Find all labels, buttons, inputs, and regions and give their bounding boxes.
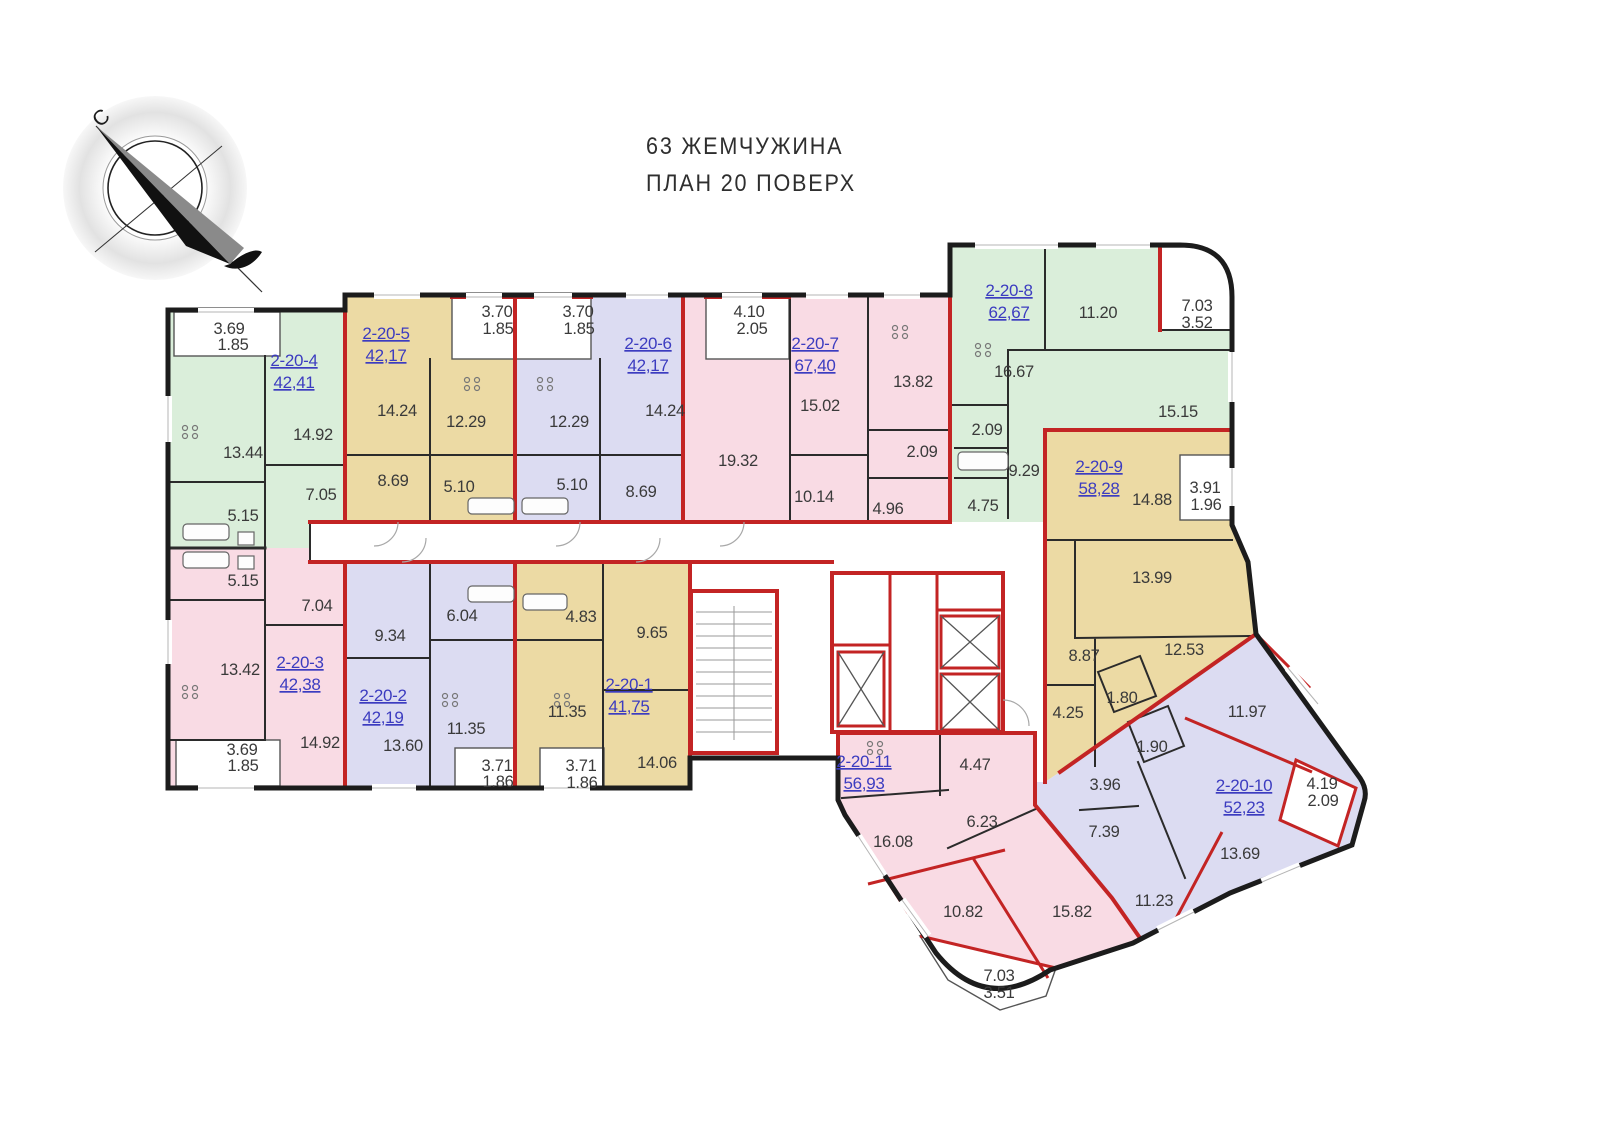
compass-rose-icon: С — [63, 96, 262, 292]
apartment-id-label: 2-20-5 — [362, 324, 409, 343]
room-area-label: 2.09 — [1308, 792, 1339, 810]
room-area-label: 4.47 — [960, 756, 991, 774]
room-area-label: 2.05 — [737, 320, 768, 338]
room-area-label: 16.67 — [994, 363, 1034, 381]
apartment-area-label: 42,41 — [273, 373, 314, 392]
room-area-label: 1.86 — [567, 774, 598, 792]
room-area-label: 15.15 — [1158, 403, 1198, 421]
room-area-label: 13.42 — [220, 661, 260, 679]
apartment-area-label: 42,17 — [627, 356, 668, 375]
room-area-label: 13.99 — [1132, 569, 1172, 587]
room-area-label: 6.04 — [447, 607, 478, 625]
room-area-label: 5.10 — [444, 478, 475, 496]
apartment-area-label: 42,19 — [362, 708, 403, 727]
apartment-area-label: 62,67 — [988, 303, 1029, 322]
room-area-label: 11.35 — [548, 703, 587, 721]
room-area-label: 9.29 — [1009, 462, 1040, 480]
room-area-label: 9.65 — [637, 624, 668, 642]
room-area-label: 5.15 — [228, 572, 259, 590]
room-area-label: 14.88 — [1132, 491, 1172, 509]
room-area-label: 3.70 — [563, 303, 594, 321]
room-area-label: 3.51 — [984, 984, 1015, 1002]
room-area-label: 15.82 — [1052, 903, 1092, 921]
room-area-label: 4.10 — [734, 303, 765, 321]
apartment-area-label: 41,75 — [608, 697, 649, 716]
room-area-label: 10.14 — [794, 488, 834, 506]
room-area-label: 13.69 — [1220, 845, 1260, 863]
apartment-id-label: 2-20-6 — [624, 334, 671, 353]
room-area-label: 14.06 — [637, 754, 677, 772]
apartment-area-label: 42,17 — [365, 346, 406, 365]
apartment-id-label: 2-20-10 — [1216, 776, 1273, 795]
room-area-label: 1.85 — [228, 757, 259, 775]
apartment-id-label: 2-20-2 — [359, 686, 406, 705]
floor-plan-drawing: С — [0, 0, 1600, 1131]
room-area-label: 1.85 — [483, 320, 514, 338]
room-area-label: 3.96 — [1090, 776, 1121, 794]
room-area-label: 3.52 — [1182, 314, 1213, 332]
room-area-label: 15.02 — [800, 397, 840, 415]
room-area-label: 5.10 — [557, 476, 588, 494]
room-area-label: 9.34 — [375, 627, 406, 645]
room-area-label: 4.75 — [968, 497, 999, 515]
room-area-label: 1.85 — [218, 336, 249, 354]
room-area-label: 2.09 — [972, 421, 1003, 439]
room-area-label: 10.82 — [943, 903, 983, 921]
room-area-label: 4.25 — [1053, 704, 1084, 722]
room-area-label: 16.08 — [873, 833, 913, 851]
room-area-label: 3.70 — [482, 303, 513, 321]
room-area-label: 2.09 — [907, 443, 938, 461]
room-area-label: 1.80 — [1107, 689, 1138, 707]
room-area-label: 11.35 — [447, 720, 486, 738]
room-area-label: 11.20 — [1079, 304, 1118, 322]
room-area-label: 3.91 — [1190, 479, 1221, 497]
room-area-label: 8.69 — [626, 483, 657, 501]
room-area-label: 4.96 — [873, 500, 904, 518]
room-area-label: 19.32 — [718, 452, 758, 470]
apartment-id-label: 2-20-3 — [276, 653, 323, 672]
apartment-area-label: 52,23 — [1223, 798, 1264, 817]
room-area-label: 7.03 — [984, 967, 1015, 985]
room-area-label: 1.86 — [483, 773, 514, 791]
room-area-label: 5.15 — [228, 507, 259, 525]
room-area-label: 12.29 — [549, 413, 589, 431]
apartment-area-label: 58,28 — [1078, 479, 1119, 498]
floor-plan-sheet: 63 ЖЕМЧУЖИНА ПЛАН 20 ПОВЕРХ С — [0, 0, 1600, 1131]
room-area-label: 13.44 — [223, 444, 263, 462]
room-area-label: 1.85 — [564, 320, 595, 338]
room-area-label: 8.87 — [1069, 647, 1100, 665]
room-area-label: 12.53 — [1164, 641, 1204, 659]
corridor — [310, 522, 1045, 562]
apartment-area-label: 42,38 — [279, 675, 320, 694]
elevator-lobby — [1003, 562, 1045, 733]
room-area-label: 1.96 — [1191, 496, 1222, 514]
room-area-label: 1.90 — [1137, 738, 1168, 756]
apartment-id-label: 2-20-1 — [605, 675, 652, 694]
room-area-label: 7.03 — [1182, 297, 1213, 315]
room-area-label: 4.19 — [1307, 775, 1338, 793]
apartment-id-label: 2-20-8 — [985, 281, 1032, 300]
apartment-id-label: 2-20-9 — [1075, 457, 1122, 476]
room-area-label: 14.24 — [645, 402, 685, 420]
room-area-label: 7.04 — [302, 597, 333, 615]
room-area-label: 4.83 — [566, 608, 597, 626]
room-area-label: 8.69 — [378, 472, 409, 490]
room-area-label: 13.60 — [383, 737, 423, 755]
apartment-id-label: 2-20-11 — [836, 752, 891, 771]
room-area-label: 12.29 — [446, 413, 486, 431]
apartment-id-label: 2-20-4 — [270, 351, 317, 370]
room-area-label: 14.92 — [300, 734, 340, 752]
room-area-label: 7.39 — [1089, 823, 1120, 841]
room-area-label: 7.05 — [306, 486, 337, 504]
room-area-label: 11.23 — [1135, 892, 1174, 910]
room-area-label: 3.71 — [566, 757, 597, 775]
stairwell — [688, 578, 782, 755]
apartment-area-label: 56,93 — [843, 774, 884, 793]
room-area-label: 14.92 — [293, 426, 333, 444]
room-area-label: 11.97 — [1228, 703, 1267, 721]
room-area-label: 13.82 — [893, 373, 933, 391]
apartment-area-label: 67,40 — [794, 356, 835, 375]
room-area-label: 14.24 — [377, 402, 417, 420]
apartment-id-label: 2-20-7 — [791, 334, 838, 353]
room-area-label: 6.23 — [967, 813, 998, 831]
